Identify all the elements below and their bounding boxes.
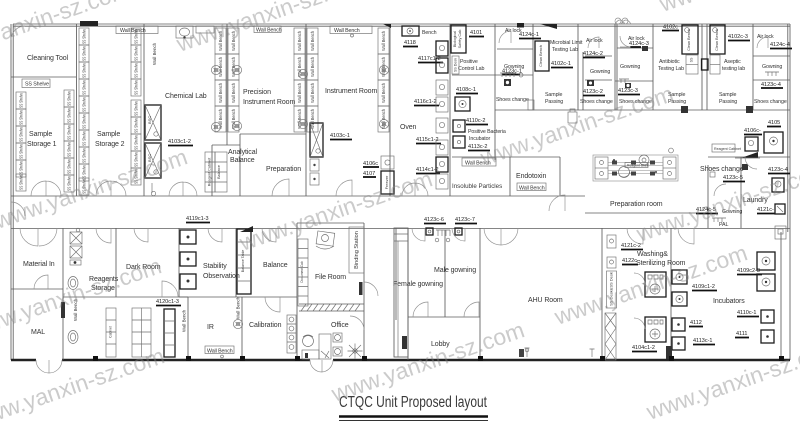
svg-text:4118: 4118: [404, 40, 416, 46]
svg-text:4113c-1: 4113c-1: [693, 338, 712, 344]
svg-text:Wall Bench: Wall Bench: [207, 349, 233, 355]
svg-text:4123c-6: 4123c-6: [424, 217, 444, 223]
svg-text:Positive: Positive: [460, 59, 478, 65]
svg-text:Air lock: Air lock: [586, 38, 603, 44]
svg-text:Passing: Passing: [545, 99, 563, 105]
svg-text:Clean Bench: Clean Bench: [687, 29, 691, 51]
svg-text:Sample: Sample: [29, 131, 52, 138]
svg-text:4110c-2: 4110c-2: [466, 118, 485, 124]
svg-text:Material In: Material In: [23, 261, 55, 268]
svg-text:Safety Cab: Safety Cab: [458, 30, 462, 49]
svg-text:Preparation: Preparation: [266, 166, 301, 173]
svg-text:Bench: Bench: [422, 30, 437, 36]
svg-text:4103c-1: 4103c-1: [330, 133, 350, 139]
svg-text:Reagent Shelf: Reagent Shelf: [627, 164, 649, 168]
svg-text:Reagent Cabinet: Reagent Cabinet: [714, 147, 741, 151]
svg-text:4117c1-2: 4117c1-2: [418, 56, 441, 62]
svg-text:Shoes change: Shoes change: [700, 166, 744, 173]
svg-text:4105: 4105: [768, 120, 780, 126]
svg-text:4115c1-2: 4115c1-2: [416, 137, 439, 143]
svg-text:Clean Bench: Clean Bench: [715, 29, 719, 51]
svg-text:MAL: MAL: [31, 329, 45, 336]
svg-text:4110c-1: 4110c-1: [737, 310, 756, 316]
svg-text:SS Desk: SS Desk: [454, 58, 458, 72]
svg-text:Instrument Room: Instrument Room: [325, 88, 377, 95]
svg-text:Storage 2: Storage 2: [95, 141, 125, 148]
svg-text:Wall Bench: Wall Bench: [152, 42, 157, 65]
svg-text:Clean Bench: Clean Bench: [539, 45, 543, 67]
svg-text:Cabinet: Cabinet: [109, 326, 113, 338]
svg-text:Observation: Observation: [203, 273, 240, 280]
svg-text:File Room: File Room: [315, 274, 346, 281]
svg-text:Reagent Cabinet: Reagent Cabinet: [208, 157, 212, 186]
svg-text:Storage 1: Storage 1: [27, 141, 57, 148]
svg-text:4123c-5: 4123c-5: [723, 175, 743, 181]
svg-text:testing lab: testing lab: [722, 66, 745, 72]
svg-text:Wall Bench: Wall Bench: [519, 186, 545, 192]
svg-text:Male gowning: Male gowning: [434, 267, 476, 274]
svg-text:4106c-: 4106c-: [744, 128, 761, 134]
svg-text:Gowning: Gowning: [620, 64, 640, 70]
svg-text:Wall Bench: Wall Bench: [182, 309, 187, 332]
svg-text:Endotoxin: Endotoxin: [516, 173, 546, 180]
svg-text:Testing Lab: Testing Lab: [658, 66, 684, 72]
svg-text:Washing&: Washing&: [637, 251, 668, 258]
svg-text:SS: SS: [690, 57, 694, 62]
svg-text:Calibration: Calibration: [249, 322, 282, 329]
svg-text:Precision: Precision: [243, 89, 271, 96]
svg-text:Oven: Oven: [400, 124, 417, 131]
svg-text:4102c-1: 4102c-1: [551, 61, 571, 67]
svg-text:Incubators: Incubators: [713, 298, 745, 305]
svg-text:Chemical Lab: Chemical Lab: [165, 93, 207, 100]
svg-text:Sample: Sample: [719, 92, 737, 98]
svg-text:Instrument Room: Instrument Room: [243, 99, 295, 106]
svg-text:Wall Bench: Wall Bench: [120, 28, 146, 34]
svg-text:4124c-1: 4124c-1: [519, 32, 539, 38]
svg-text:Preparation room: Preparation room: [610, 201, 663, 208]
svg-text:Sample: Sample: [97, 131, 120, 138]
svg-text:Shoes change: Shoes change: [754, 99, 787, 105]
svg-text:4111: 4111: [736, 331, 747, 337]
svg-text:BSC: BSC: [147, 116, 152, 124]
svg-text:4124c-2: 4124c-2: [583, 51, 603, 57]
svg-text:4104c1-2: 4104c1-2: [632, 345, 655, 351]
svg-text:4124c-4: 4124c-4: [770, 42, 790, 48]
svg-text:4116c1-2: 4116c1-2: [414, 99, 437, 105]
svg-text:Antibiotic: Antibiotic: [659, 59, 680, 65]
svg-text:Wall Bench: Wall Bench: [236, 296, 241, 319]
svg-text:Stability: Stability: [203, 263, 227, 270]
svg-text:Balance: Balance: [263, 262, 288, 269]
svg-text:Control Lab: Control Lab: [458, 66, 484, 72]
svg-text:4123c-7: 4123c-7: [455, 217, 475, 223]
svg-text:IR: IR: [207, 324, 214, 331]
svg-text:4123c-2: 4123c-2: [583, 89, 603, 95]
svg-text:Sample: Sample: [545, 92, 563, 98]
svg-text:PAL: PAL: [719, 222, 728, 228]
svg-text:Insoluble Particles: Insoluble Particles: [452, 183, 502, 190]
svg-text:Shoes change: Shoes change: [496, 97, 529, 103]
svg-text:Biological: Biological: [453, 31, 457, 47]
svg-text:4109c1-2: 4109c1-2: [692, 284, 715, 290]
svg-text:Female gowning: Female gowning: [393, 281, 443, 288]
svg-text:Microbial Limit: Microbial Limit: [550, 40, 583, 46]
svg-text:Binding Station: Binding Station: [354, 231, 360, 269]
svg-text:4120c1-3: 4120c1-3: [156, 299, 179, 305]
svg-text:Cleaning Tool: Cleaning Tool: [27, 55, 69, 62]
svg-text:Analytical: Analytical: [228, 149, 258, 156]
svg-text:4108c-1: 4108c-1: [456, 87, 476, 93]
svg-text:4102c-3: 4102c-3: [728, 34, 748, 40]
svg-text:Gowning: Gowning: [590, 69, 610, 75]
svg-text:Wall Bench: Wall Bench: [334, 28, 360, 34]
svg-text:4112: 4112: [690, 320, 702, 326]
svg-text:Testing Lab: Testing Lab: [552, 47, 578, 53]
svg-text:4119c1-3: 4119c1-3: [186, 216, 209, 222]
svg-text:4121c-2: 4121c-2: [621, 243, 641, 249]
svg-text:Gowning: Gowning: [762, 64, 782, 70]
svg-text:Balance: Balance: [217, 165, 221, 179]
svg-text:4122c: 4122c: [622, 258, 637, 264]
svg-text:SS Shelve: SS Shelve: [25, 82, 49, 88]
svg-text:Balance: Balance: [230, 157, 255, 164]
svg-text:Incubator: Incubator: [469, 136, 491, 142]
svg-text:Positive Bacteria: Positive Bacteria: [468, 129, 506, 135]
svg-text:4101: 4101: [470, 30, 482, 36]
svg-text:Document Cab: Document Cab: [300, 261, 304, 282]
svg-text:Aseptic: Aseptic: [724, 59, 741, 65]
svg-text:Office: Office: [331, 322, 349, 329]
svg-text:4121c-: 4121c-: [757, 207, 774, 213]
svg-text:Passing: Passing: [719, 99, 737, 105]
